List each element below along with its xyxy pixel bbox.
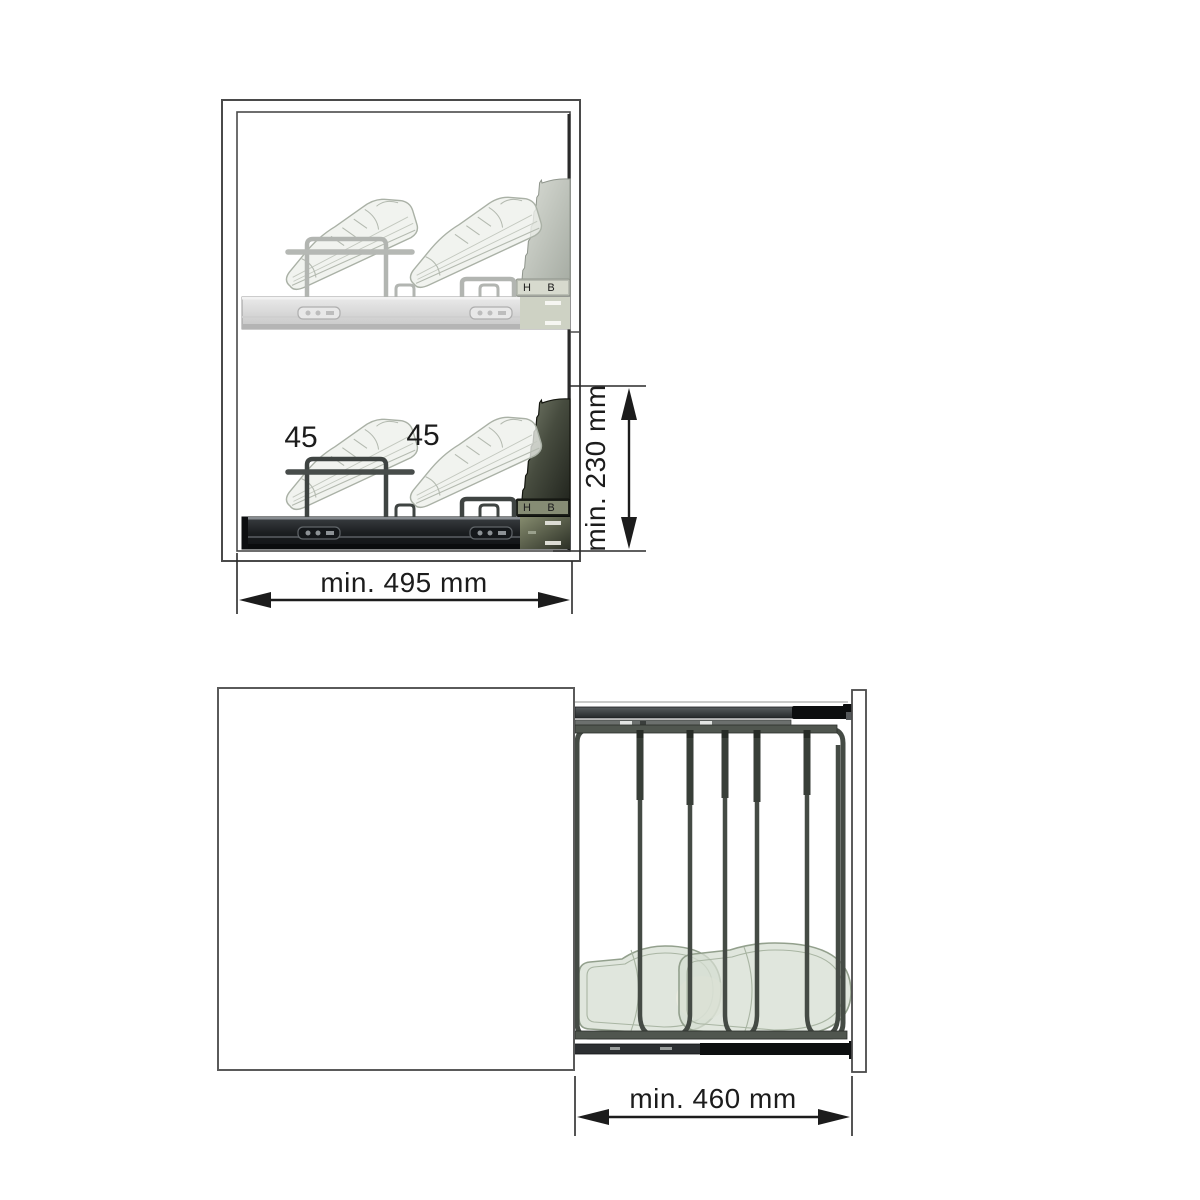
divider-wire-sleeves xyxy=(640,734,807,805)
basket-rear-bar xyxy=(575,1031,847,1039)
shoe-top-view-right xyxy=(679,943,851,1037)
mounting-bracket-dark: H B xyxy=(516,499,570,516)
arrowhead-up-icon xyxy=(621,388,637,420)
arrowhead-left-icon xyxy=(577,1109,609,1125)
arrowhead-left-icon xyxy=(239,592,271,608)
toe-hooks-ghost xyxy=(396,285,498,297)
angle-label-1: 45 xyxy=(284,421,317,454)
angle-label-2: 45 xyxy=(406,419,439,452)
bracket-mark-h-ghost: H xyxy=(523,282,531,294)
shoe-rack-technical-diagram: H B H B xyxy=(0,0,1200,1200)
wire-hoop-small-ghost xyxy=(462,279,514,297)
side-view-figure: H B H B xyxy=(222,100,646,614)
cabinet-panel-top-view xyxy=(218,688,574,1070)
arrowhead-right-icon xyxy=(538,592,570,608)
dimension-width-495: min. 495 mm xyxy=(237,553,572,614)
bracket-mark-b-ghost: B xyxy=(547,282,554,294)
width-dimension-label: min. 495 mm xyxy=(320,567,487,598)
basket-front-bar xyxy=(575,725,837,733)
top-view-figure: min. 460 mm xyxy=(218,688,866,1136)
slide-rail-dark xyxy=(242,517,570,549)
arrowhead-down-icon xyxy=(621,517,637,549)
wire-hoop-small-dark xyxy=(462,499,514,517)
top-view-shoes xyxy=(579,943,851,1037)
shoe-rack-upper-ghost: H B xyxy=(242,179,570,329)
height-dimension-label: min. 230 mm xyxy=(580,384,611,551)
mounting-bracket-ghost: H B xyxy=(516,279,570,296)
shoe-rack-lower-dark: H B 45 45 xyxy=(242,399,570,549)
top-view-rails xyxy=(575,702,853,727)
bracket-mark-b-dark: B xyxy=(547,502,554,514)
cabinet-inner-wall xyxy=(237,112,570,551)
bottom-slide-rail xyxy=(572,1041,854,1059)
slide-rail-inner-black xyxy=(792,706,850,719)
bracket-mark-h-dark: H xyxy=(523,502,531,514)
dimension-width-460: min. 460 mm xyxy=(575,1076,852,1136)
slide-rail-ghost xyxy=(242,297,570,329)
width-dimension-label-bottom: min. 460 mm xyxy=(629,1083,796,1114)
diagram-svg: H B H B xyxy=(0,0,1200,1200)
arrowhead-right-icon xyxy=(818,1109,850,1125)
cabinet-side-panel xyxy=(852,690,866,1072)
toe-hooks-dark xyxy=(396,505,498,517)
